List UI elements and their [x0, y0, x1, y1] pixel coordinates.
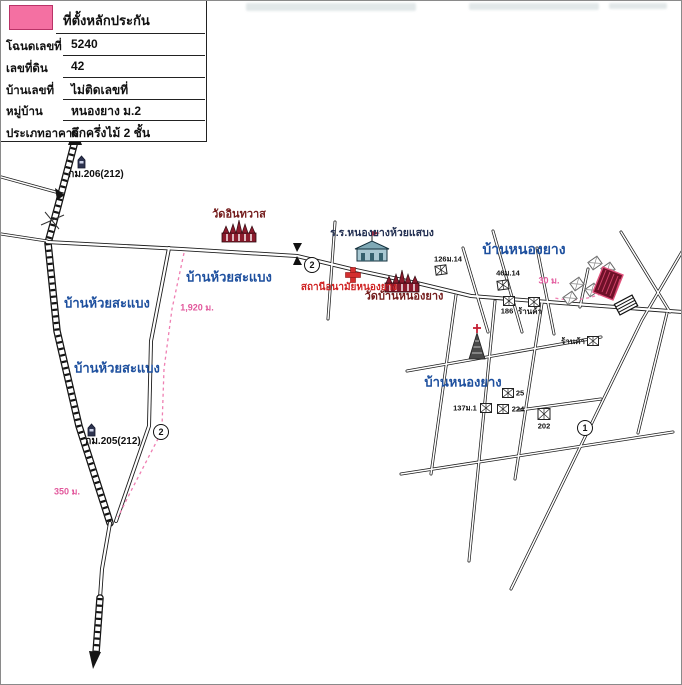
legend-row-value: ไม่ติดเลขที่ — [71, 81, 128, 100]
scanned-map-page: กม.206(212) กม.205(212) บ้านห้วยสะแบง บ้… — [0, 0, 682, 685]
village-label: บ้านห้วยสะแบง — [74, 362, 160, 375]
legend-row-label: เลขที่ดิน — [6, 60, 48, 78]
route-number-badge: 1 — [577, 420, 593, 436]
clinic-label: สถานีอนามัยหนองยาง — [301, 283, 397, 293]
house-icon — [588, 256, 602, 270]
house-number-label: 25 — [516, 389, 524, 397]
house-number-label: 126ม.14 — [434, 255, 462, 263]
distance-label: 1,920 ม. — [180, 304, 213, 313]
house-icon — [435, 265, 447, 275]
collateral-building-icon — [593, 267, 623, 300]
village-label: บ้านห้วยสะแบง — [186, 271, 272, 284]
distance-label: 350 ม. — [54, 488, 80, 497]
house-icon — [503, 389, 514, 398]
temple-label: วัดบ้านหนองยาง — [365, 292, 444, 303]
house-number-label: 137ม.1 — [453, 404, 477, 412]
route-number-badge: 2 — [153, 424, 169, 440]
house-icon — [497, 280, 509, 290]
legend-row-value: หนองยาง ม.2 — [71, 102, 141, 121]
route-number-badge: 2 — [304, 257, 320, 273]
distance-label: 30 ม. — [539, 277, 560, 286]
school-label: ร.ร.หนองยางห้วยแสบง — [330, 228, 434, 239]
highway-ladder-road — [48, 127, 110, 523]
church-icon — [469, 324, 485, 359]
house-icon — [538, 409, 550, 420]
village-label: บ้านหนองยาง — [424, 376, 501, 389]
house-number-label: 46ม.14 — [496, 269, 520, 277]
legend-row-label: บ้านเลขที่ — [6, 82, 54, 100]
legend-row-value: 5240 — [71, 37, 98, 51]
shop-label: ร้านค้า — [518, 308, 542, 316]
road-fills — [1, 177, 682, 598]
house-number-label: 186 — [501, 307, 514, 315]
road-end-striped-arrow — [89, 598, 101, 669]
village-label: บ้านหนองยาง — [482, 242, 565, 256]
legend-title: ที่ตั้งหลักประกัน — [63, 10, 150, 31]
temple-icon — [222, 220, 256, 242]
legend-row-value: ตึกครึ่งไม้ 2 ชั้น — [71, 124, 150, 143]
house-number-label: 224 — [512, 405, 525, 413]
village-label: บ้านห้วยสะแบง — [64, 297, 150, 310]
house-icon — [481, 404, 492, 413]
km-marker-label: กม.206(212) — [68, 170, 123, 180]
south-direction-arrow-icon — [89, 651, 101, 669]
house-number-label: 202 — [538, 422, 551, 430]
km-post-icon — [78, 156, 85, 168]
shop-house-icon — [529, 298, 540, 307]
shop-label: ร้านค้า — [561, 338, 585, 346]
house-icon — [504, 297, 515, 306]
collateral-color-swatch — [9, 5, 53, 30]
legend-row-label: หมู่บ้าน — [6, 103, 43, 121]
legend-row-label: ประเภทอาคาร — [6, 125, 78, 143]
house-icon — [498, 405, 509, 414]
striped-building-icon — [614, 295, 637, 315]
house-icon — [570, 277, 584, 291]
property-info-table: ที่ตั้งหลักประกัน โฉนดเลขที่ 5240 เลขที่… — [1, 1, 207, 142]
road-casings — [1, 177, 682, 598]
shop-house-icon — [588, 337, 599, 346]
legend-row-value: 42 — [71, 59, 84, 73]
temple-label: วัดอินทวาส — [212, 210, 266, 221]
km-post-icon — [88, 424, 95, 436]
km-marker-label: กม.205(212) — [85, 437, 140, 447]
legend-row-label: โฉนดเลขที่ — [6, 38, 62, 56]
